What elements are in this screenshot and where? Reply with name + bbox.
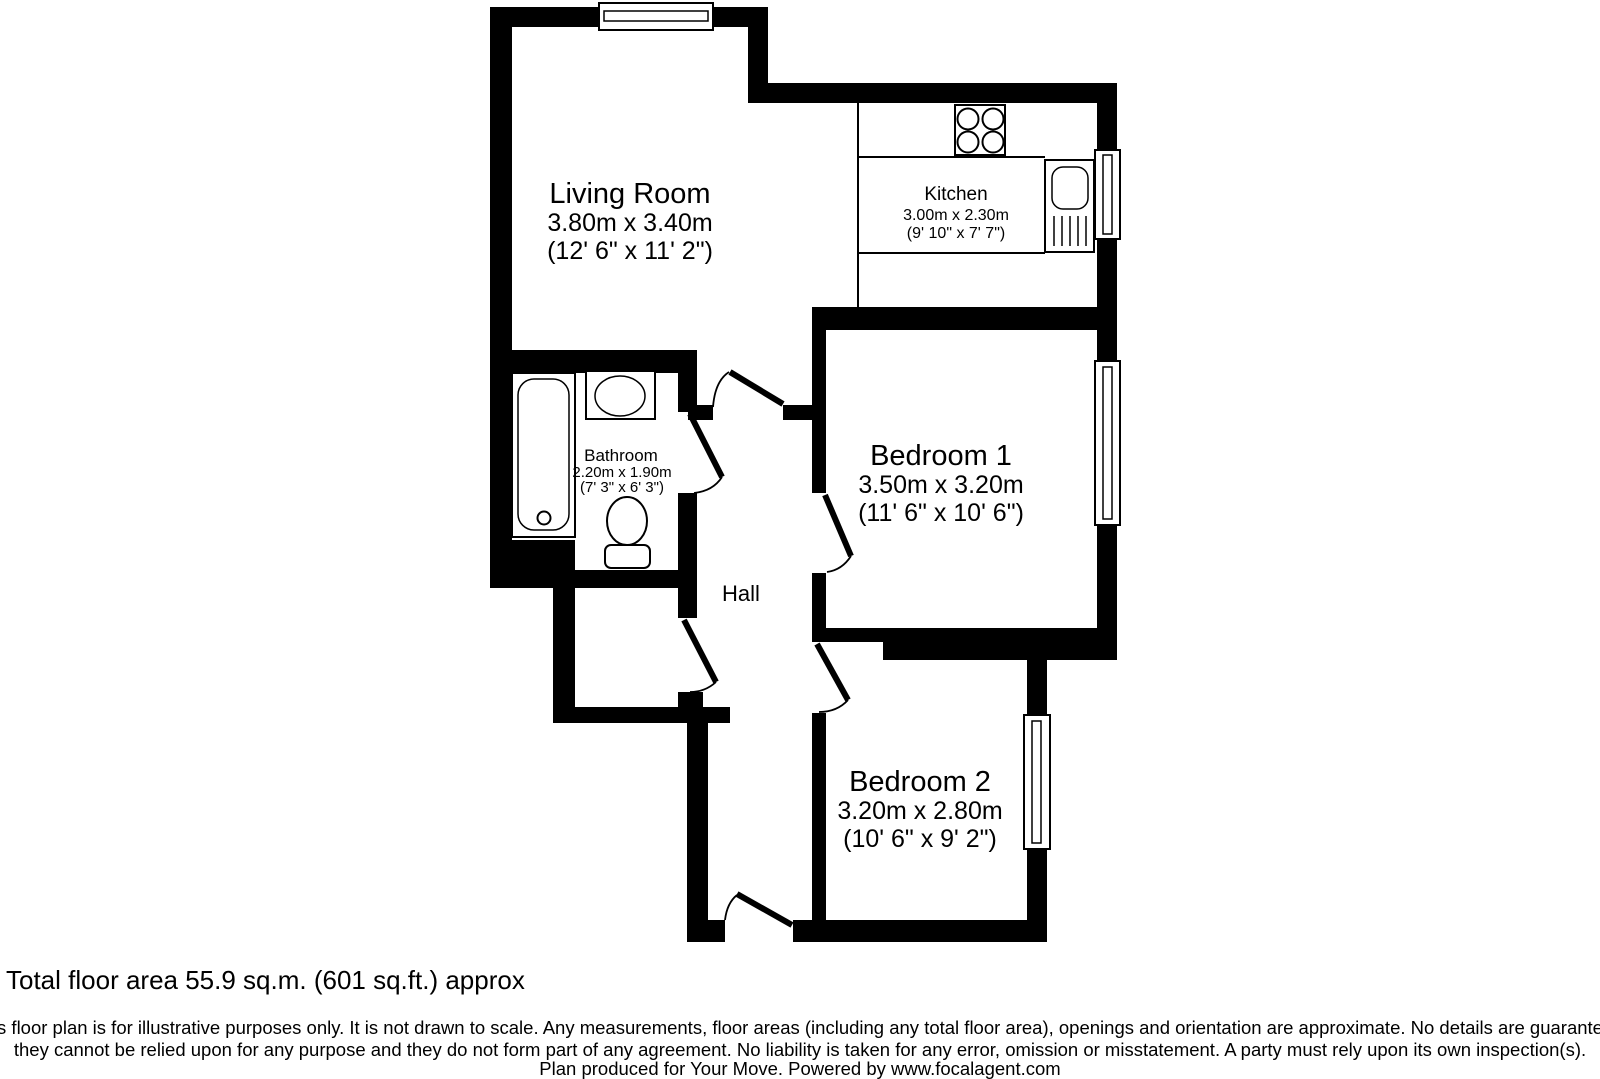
wall-bathroom-right-upper	[678, 350, 697, 412]
disclaimer-line-3: Plan produced for Your Move. Powered by …	[539, 1058, 1060, 1079]
wall-bedroom2-top	[883, 642, 1117, 660]
kitchen-window-icon	[1095, 150, 1120, 239]
wall-bathroom-right-mid	[678, 493, 697, 618]
bedroom2-door-icon	[817, 644, 848, 712]
bedroom1-window-icon	[1095, 361, 1120, 525]
bedroom2-dims-imperial: (10' 6" x 9' 2")	[843, 825, 997, 853]
bathroom-dims-imperial: (7' 3" x 6' 3")	[580, 479, 664, 496]
wall-bathroom-top	[490, 350, 688, 373]
wall-livingdoor-stub-right	[783, 405, 812, 420]
living-room-window-icon	[599, 3, 713, 30]
wall-below-bath-block	[490, 540, 575, 570]
living-room-dims-imperial: (12' 6" x 11' 2")	[547, 237, 713, 265]
wall-left-outer	[490, 7, 512, 588]
bathroom-door-icon	[690, 414, 722, 493]
kitchen-fixtures	[858, 103, 1094, 307]
bathroom-sink-icon	[586, 371, 655, 419]
bedroom1-door-icon	[825, 495, 851, 572]
living-room-dims-metric: 3.80m x 3.40m	[547, 209, 712, 237]
disclaimer-line-1: This floor plan is for illustrative purp…	[0, 1017, 1600, 1038]
total-floor-area-text: Total floor area 55.9 sq.m. (601 sq.ft.)…	[6, 965, 525, 995]
wall-cupboard-bottom	[553, 707, 730, 723]
hob-icon	[955, 105, 1005, 155]
kitchen-label: Kitchen	[924, 184, 987, 205]
wall-bedroom1-bottom	[812, 628, 1117, 642]
bathtub-icon	[512, 373, 575, 537]
bedroom1-dims-metric: 3.50m x 3.20m	[858, 471, 1023, 499]
hall-label: Hall	[722, 581, 760, 606]
wall-kitchen-bedroom1-divider	[812, 307, 1117, 330]
kitchen-dims-imperial: (9' 10" x 7' 7")	[907, 225, 1005, 242]
footer: Total floor area 55.9 sq.m. (601 sq.ft.)…	[0, 965, 1600, 1079]
bedroom2-dims-metric: 3.20m x 2.80m	[837, 797, 1002, 825]
wall-corridor-right	[812, 713, 826, 920]
living-room-door-icon	[713, 372, 783, 407]
floorplan-page: Living Room 3.80m x 3.40m (12' 6" x 11' …	[0, 0, 1600, 1079]
kitchen-sink-icon	[1045, 160, 1094, 252]
bedroom2-window-icon	[1024, 715, 1050, 849]
wall-bedroom1-left-upper	[812, 330, 826, 493]
wall-corridor-left	[687, 723, 708, 920]
toilet-icon	[605, 497, 650, 568]
bedroom1-dims-imperial: (11' 6" x 10' 6")	[858, 499, 1024, 527]
wall-bathroom-bottom	[490, 570, 697, 588]
disclaimer-line-2: they cannot be relied upon for any purpo…	[14, 1039, 1586, 1060]
cupboard-door-icon	[684, 620, 716, 692]
wall-bottom-right	[793, 920, 1047, 942]
bedroom2-label: Bedroom 2	[849, 766, 991, 798]
wall-bottom-left-foot	[687, 920, 725, 942]
bedroom1-label: Bedroom 1	[870, 440, 1012, 472]
entrance-door-icon	[725, 894, 792, 925]
kitchen-dims-metric: 3.00m x 2.30m	[903, 207, 1009, 224]
living-room-label: Living Room	[549, 178, 710, 210]
floorplan-svg: Living Room 3.80m x 3.40m (12' 6" x 11' …	[0, 0, 1600, 1079]
bathroom-label: Bathroom	[584, 446, 658, 465]
wall-kitchen-top	[748, 83, 1117, 103]
wall-cupboard-left	[553, 588, 575, 723]
